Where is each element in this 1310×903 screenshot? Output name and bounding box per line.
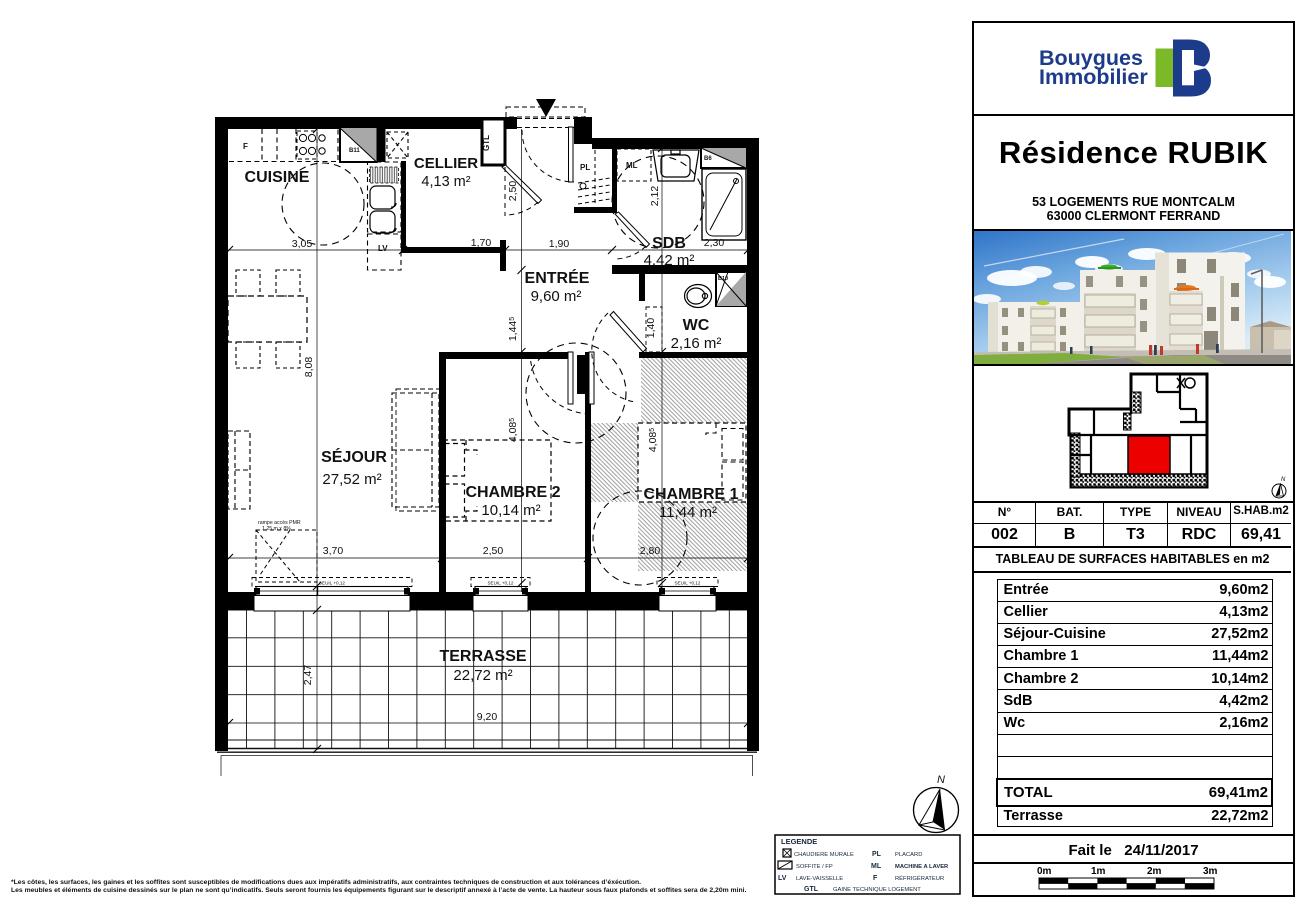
svg-text:3,05: 3,05: [292, 238, 313, 250]
svg-text:B11: B11: [349, 148, 360, 154]
svg-text:PL: PL: [580, 163, 590, 172]
svg-text:27,52 m²: 27,52 m²: [322, 471, 381, 488]
svg-text:MACHINE A LAVER: MACHINE A LAVER: [895, 864, 949, 870]
svg-text:SDB: SDB: [652, 235, 686, 252]
svg-text:4,42 m²: 4,42 m²: [644, 252, 695, 269]
svg-text:SEUIL +0,12: SEUIL +0,12: [674, 581, 700, 586]
svg-text:4,085: 4,085: [507, 418, 519, 442]
svg-text:2,47: 2,47: [302, 665, 314, 686]
svg-text:2,50: 2,50: [483, 545, 504, 557]
svg-text:0m: 0m: [1037, 866, 1052, 877]
svg-text:GTL: GTL: [482, 135, 491, 151]
svg-text:22,72 m²: 22,72 m²: [453, 667, 512, 684]
svg-text:Immobilier: Immobilier: [1039, 65, 1148, 89]
svg-text:SEUIL +0,12: SEUIL +0,12: [319, 581, 345, 586]
svg-text:9,20: 9,20: [477, 711, 498, 723]
svg-text:PLACARD: PLACARD: [895, 852, 922, 858]
svg-text:F: F: [873, 875, 878, 882]
svg-text:2,30: 2,30: [704, 237, 725, 249]
svg-text:B6: B6: [704, 156, 712, 162]
svg-text:F: F: [243, 142, 248, 151]
svg-text:1,445: 1,445: [507, 317, 519, 341]
svg-text:*Les côtes, les surfaces, les: *Les côtes, les surfaces, les gaines et …: [11, 879, 641, 886]
svg-text:9,60 m²: 9,60 m²: [531, 288, 582, 305]
svg-text:RÉFRIGÉRATEUR: RÉFRIGÉRATEUR: [895, 875, 944, 882]
svg-text:SÉJOUR: SÉJOUR: [321, 447, 387, 466]
svg-text:LAVE-VAISSELLE: LAVE-VAISSELLE: [796, 876, 843, 882]
svg-text:1,70: 1,70: [471, 237, 492, 249]
svg-text:N: N: [1281, 477, 1286, 483]
svg-text:LV: LV: [378, 244, 388, 253]
svg-text:1m: 1m: [1091, 866, 1106, 877]
svg-text:10,14 m²: 10,14 m²: [481, 502, 540, 519]
svg-text:CHAMBRE 1: CHAMBRE 1: [643, 486, 738, 503]
svg-text:Les meubles et éléments de cui: Les meubles et éléments de cuisine dessi…: [11, 887, 747, 894]
svg-text:SOFFITE / FP: SOFFITE / FP: [796, 864, 833, 870]
svg-text:1,90: 1,90: [549, 238, 570, 250]
svg-text:ENTRÉE: ENTRÉE: [525, 268, 590, 287]
svg-text:1,40: 1,40: [645, 318, 657, 339]
svg-text:TERRASSE: TERRASSE: [439, 648, 526, 665]
svg-text:LEGENDE: LEGENDE: [781, 837, 817, 846]
svg-text:2,80: 2,80: [640, 545, 661, 557]
svg-text:CUISINE: CUISINE: [245, 169, 310, 186]
svg-text:11,44 m²: 11,44 m²: [659, 504, 717, 521]
svg-text:GTL: GTL: [804, 886, 819, 893]
svg-text:SEUIL +0,12: SEUIL +0,12: [487, 581, 513, 586]
svg-text:2,12: 2,12: [649, 186, 661, 207]
svg-text:2,16 m²: 2,16 m²: [671, 335, 722, 352]
svg-text:B10: B10: [718, 276, 728, 282]
svg-text:2m: 2m: [1147, 866, 1162, 877]
svg-text:PL: PL: [872, 851, 882, 858]
svg-text:ML: ML: [626, 161, 638, 170]
svg-text:4,13 m²: 4,13 m²: [421, 174, 470, 190]
svg-text:8,08: 8,08: [303, 357, 315, 378]
svg-text:LV: LV: [778, 875, 787, 882]
svg-text:CELLIER: CELLIER: [414, 155, 478, 172]
svg-text:WC: WC: [683, 317, 710, 334]
svg-text:ML: ML: [871, 863, 882, 870]
svg-text:N: N: [937, 774, 945, 786]
svg-text:CHAMBRE 2: CHAMBRE 2: [465, 484, 560, 501]
svg-text:CHAUDIERE MURALE: CHAUDIERE MURALE: [794, 852, 854, 858]
svg-text:2,50: 2,50: [507, 181, 519, 202]
svg-text:3,70: 3,70: [323, 545, 344, 557]
svg-text:GAINE TECHNIQUE LOGEMENT: GAINE TECHNIQUE LOGEMENT: [833, 887, 921, 893]
svg-text:1,25 m x 8%: 1,25 m x 8%: [262, 526, 291, 532]
svg-text:3m: 3m: [1203, 866, 1218, 877]
